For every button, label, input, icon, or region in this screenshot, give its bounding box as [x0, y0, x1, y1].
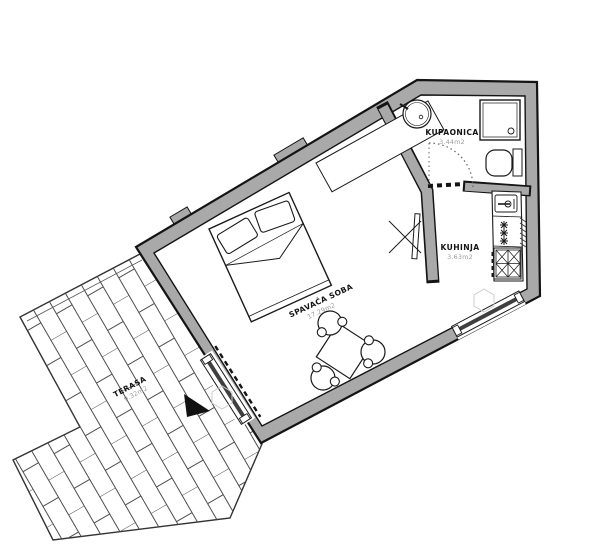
toilet-icon	[486, 149, 522, 176]
stove-icon	[492, 248, 522, 279]
shower-icon	[480, 100, 520, 140]
kitchen-counter	[492, 191, 527, 281]
freezer-stars-icon	[500, 221, 508, 245]
room-area-kupaonica: 3.44m2	[439, 138, 465, 146]
stove-knob	[492, 273, 495, 277]
stove-knob	[492, 252, 495, 256]
stove-knob	[492, 266, 495, 270]
bath-kitchen-wall	[465, 187, 529, 191]
room-label-kupaonica: KUPAONICA	[425, 128, 478, 137]
room-label-kuhinja: KUHINJA	[441, 243, 480, 252]
stove-knob	[492, 259, 495, 263]
floor-plan-svg: TERASA 9.32m2	[0, 0, 600, 552]
room-area-kuhinja: 3.63m2	[447, 253, 473, 261]
floor-plan-page: TERASA 9.32m2	[0, 0, 600, 552]
